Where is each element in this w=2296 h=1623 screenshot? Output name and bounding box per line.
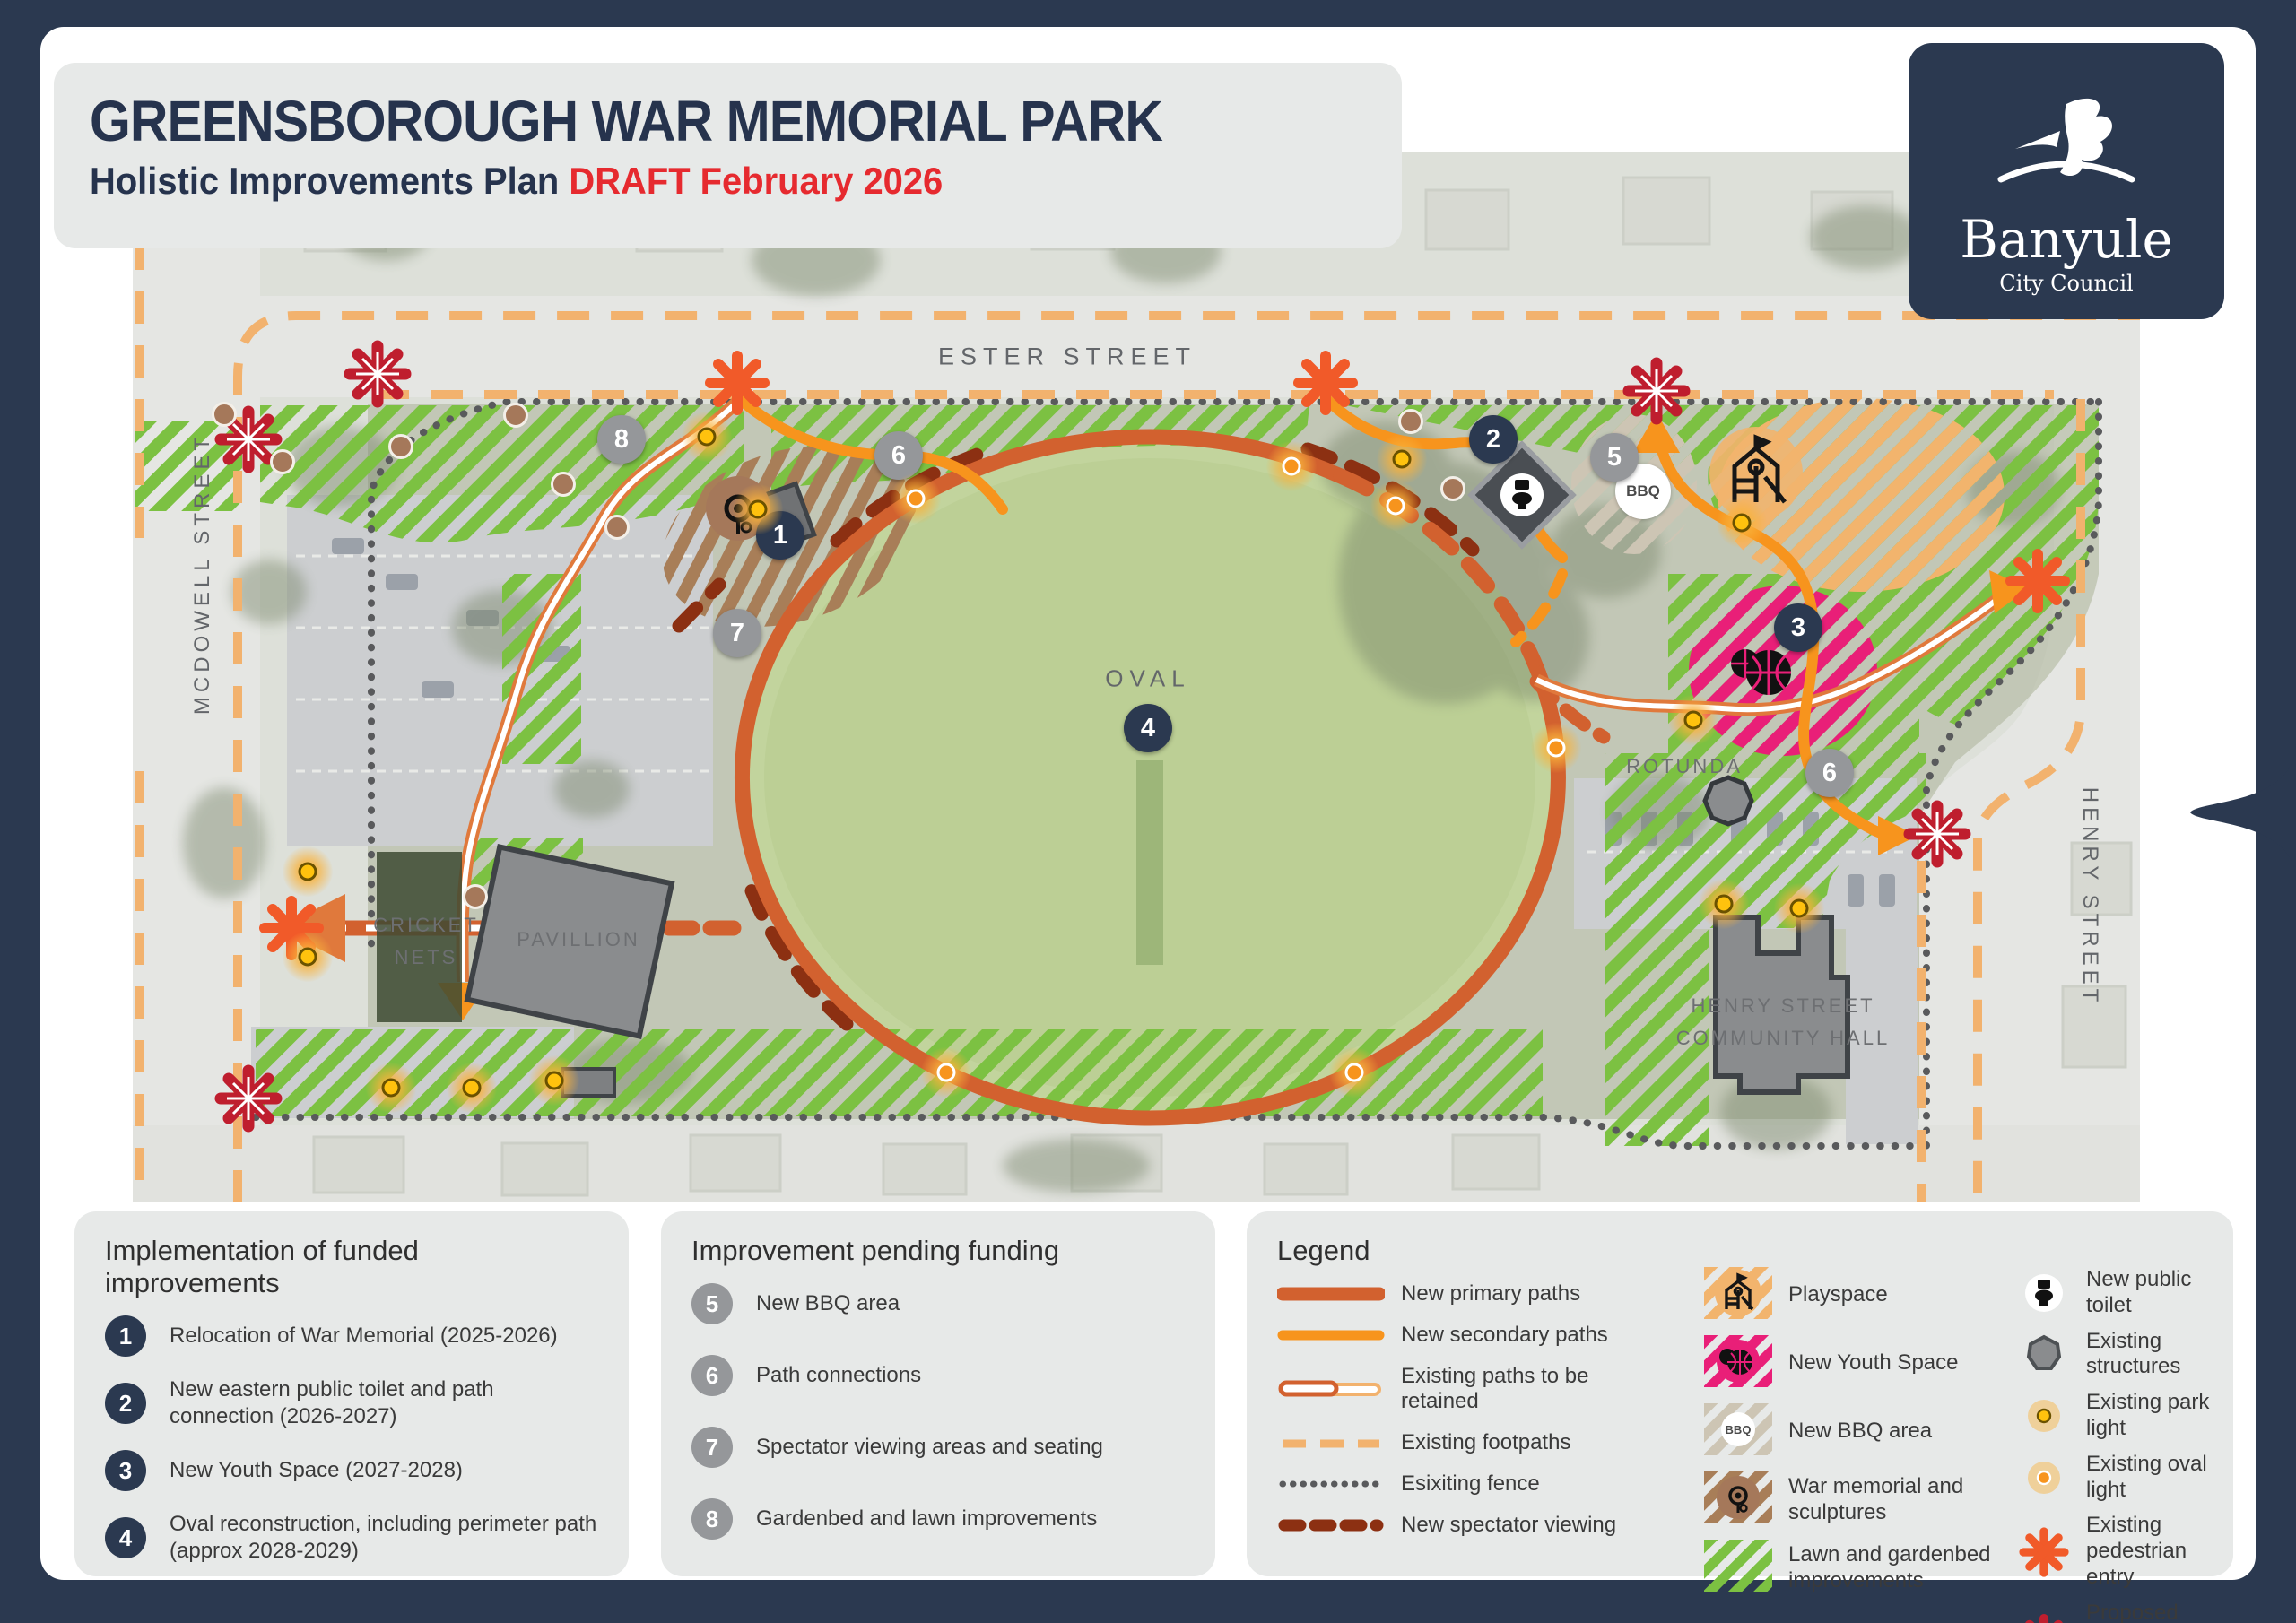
tree-dot: [388, 434, 413, 459]
legend-primary-paths: New primary paths: [1277, 1281, 1672, 1307]
subtitle-plain: Holistic Improvements Plan: [90, 160, 569, 202]
legend-war-memorial: War memorial and sculptures: [1704, 1471, 1991, 1528]
svg-text:BBQ: BBQ: [1726, 1423, 1752, 1436]
rotunda-label: ROTUNDA: [1626, 755, 1743, 778]
pending-item-7: 7 Spectator viewing areas and seating: [691, 1427, 1185, 1468]
legend-label: Existing structures: [2086, 1329, 2224, 1381]
pending-item-6-badge: 6: [691, 1355, 733, 1396]
legend-youth-space: New Youth Space: [1704, 1335, 1991, 1392]
park-light-legend-icon: [2018, 1395, 2070, 1436]
legend-playspace: Playspace: [1704, 1267, 1991, 1324]
park-light-icon: [733, 484, 783, 534]
logo-subtitle: City Council: [1999, 271, 2133, 296]
park-light-icon: [1377, 434, 1427, 484]
park-light-icon: [1668, 695, 1718, 745]
pending-item-7-badge: 7: [691, 1427, 733, 1468]
marker-7: 7: [713, 609, 761, 657]
funded-item-4: 4 Oval reconstruction, including perimet…: [105, 1511, 598, 1565]
legend-label: New secondary paths: [1401, 1323, 1608, 1349]
legend-label: Existing oval light: [2086, 1452, 2224, 1504]
marker-6-top: 6: [874, 431, 923, 480]
banyule-bird-icon: [1981, 97, 2152, 213]
tree-dot: [1398, 409, 1423, 434]
ester-street-label: ESTER STREET: [938, 343, 1196, 371]
oval-light-legend-icon: [2018, 1457, 2070, 1498]
cricket-nets-label-2: NETS: [395, 946, 458, 969]
funded-item-2: 2 New eastern public toilet and path con…: [105, 1376, 598, 1430]
funded-item-1: 1 Relocation of War Memorial (2025-2026): [105, 1315, 598, 1357]
pending-funding-panel: Improvement pending funding 5 New BBQ ar…: [661, 1211, 1215, 1576]
legend-label: Existing pedestrian entry: [2086, 1513, 2224, 1590]
secondary-path-icon: [1277, 1326, 1385, 1344]
legend-secondary-paths: New secondary paths: [1277, 1323, 1672, 1349]
tree-dot: [551, 472, 576, 497]
legend-label: Proposed pedestrian entry: [2086, 1601, 2224, 1623]
legend-label: Lawn and gardenbed improvements: [1788, 1542, 1991, 1594]
tree-dot: [212, 402, 237, 427]
page-subtitle: Holistic Improvements Plan DRAFT Februar…: [90, 160, 1302, 203]
title-panel: GREENSBOROUGH WAR MEMORIAL PARK Holistic…: [54, 63, 1402, 248]
legend-existing-footpaths: Existing footpaths: [1277, 1430, 1672, 1456]
legend-title: Legend: [1277, 1235, 2203, 1267]
funded-item-4-badge: 4: [105, 1517, 146, 1558]
legend-label: Existing paths to be retained: [1401, 1364, 1672, 1416]
legend-bbq-area: BBQ New BBQ area: [1704, 1403, 1991, 1460]
legend-spectator-viewing: New spectator viewing: [1277, 1513, 1672, 1539]
pending-item-8-badge: 8: [691, 1498, 733, 1540]
marker-5: 5: [1590, 433, 1639, 482]
park-light-icon: [682, 412, 732, 462]
marker-2: 2: [1469, 415, 1518, 464]
legend-label: Esixiting fence: [1401, 1471, 1540, 1497]
legend-label: Existing park light: [2086, 1390, 2224, 1442]
tree-dot: [463, 884, 488, 909]
oval-label: OVAL: [1105, 665, 1190, 693]
legend-label: New BBQ area: [1788, 1419, 1932, 1445]
legend-oval-light: Existing oval light: [2018, 1452, 2224, 1504]
existing-entry-legend-icon: [2018, 1527, 2070, 1577]
park-light-icon: [283, 846, 333, 897]
legend-label: New primary paths: [1401, 1281, 1580, 1307]
funded-item-3: 3 New Youth Space (2027-2028): [105, 1450, 598, 1491]
legend-lawn-gardenbed: Lawn and gardenbed improvements: [1704, 1540, 1991, 1596]
subtitle-draft: DRAFT February 2026: [569, 160, 943, 202]
marker-4: 4: [1124, 704, 1172, 752]
oval-light-icon: [1266, 441, 1317, 491]
oval-light-icon: [921, 1047, 971, 1098]
park-light-icon: [1699, 879, 1749, 929]
legend-label: New Youth Space: [1788, 1350, 1958, 1376]
fence-icon: [1277, 1475, 1385, 1493]
legend-new-toilet: New public toilet: [2018, 1267, 2224, 1319]
toilet-legend-icon: [2018, 1272, 2070, 1314]
community-hall-label-1: HENRY STREET: [1691, 994, 1874, 1018]
playspace-swatch-icon: [1704, 1267, 1772, 1324]
legend-existing-structures: Existing structures: [2018, 1329, 2224, 1381]
funded-item-2-badge: 2: [105, 1383, 146, 1424]
structure-legend-icon: [2018, 1333, 2070, 1375]
funded-item-2-text: New eastern public toilet and path conne…: [170, 1376, 598, 1430]
spectator-icon: [1277, 1516, 1385, 1534]
marker-8: 8: [597, 415, 646, 464]
legend-retained-paths: Existing paths to be retained: [1277, 1364, 1672, 1416]
park-light-icon: [1774, 883, 1824, 933]
park-light-icon: [366, 1063, 416, 1113]
funded-improvements-panel: Implementation of funded improvements 1 …: [74, 1211, 629, 1576]
cricket-nets-structure: [377, 852, 462, 1022]
tree-dot: [270, 449, 295, 474]
park-light-icon: [529, 1055, 579, 1106]
oval-light-icon: [1329, 1047, 1379, 1098]
pending-item-6: 6 Path connections: [691, 1355, 1185, 1396]
marker-6-bottom: 6: [1805, 749, 1854, 797]
tree-dot: [503, 403, 528, 428]
cricket-pitch: [1136, 760, 1163, 965]
proposed-entry-legend-icon: [2018, 1614, 2070, 1623]
mcdowell-street-label: MCDOWELL STREET: [190, 433, 215, 715]
legend-panel: Legend New primary paths New secondary p…: [1247, 1211, 2233, 1576]
oval-light-icon: [891, 473, 941, 524]
park-light-icon: [1717, 498, 1767, 548]
legend-park-light: Existing park light: [2018, 1390, 2224, 1442]
funded-panel-title: Implementation of funded improvements: [105, 1235, 598, 1299]
legend-label: New public toilet: [2086, 1267, 2224, 1319]
pending-item-8: 8 Gardenbed and lawn improvements: [691, 1498, 1185, 1540]
funded-item-1-badge: 1: [105, 1315, 146, 1357]
community-hall-label-2: COMMUNITY HALL: [1676, 1027, 1890, 1050]
plan-frame: ESTER STREET MCDOWELL STREET HENRY STREE…: [0, 0, 2296, 1623]
cricket-nets-label-1: CRICKET: [373, 914, 479, 937]
funded-item-3-text: New Youth Space (2027-2028): [170, 1457, 463, 1484]
park-light-icon: [447, 1063, 497, 1113]
pending-item-5: 5 New BBQ area: [691, 1283, 1185, 1324]
primary-path-icon: [1277, 1285, 1385, 1303]
funded-item-4-text: Oval reconstruction, including perimeter…: [170, 1511, 598, 1565]
funded-item-1-text: Relocation of War Memorial (2025-2026): [170, 1323, 558, 1350]
oval-light-icon: [1370, 481, 1421, 531]
funded-item-3-badge: 3: [105, 1450, 146, 1491]
youth-space-swatch-icon: [1704, 1335, 1772, 1392]
legend-existing-fence: Esixiting fence: [1277, 1471, 1672, 1497]
pending-item-8-text: Gardenbed and lawn improvements: [756, 1506, 1097, 1532]
legend-label: Playspace: [1788, 1282, 1888, 1308]
marker-3: 3: [1774, 603, 1822, 652]
tree-dot: [604, 515, 630, 540]
retained-path-icon: [1277, 1378, 1385, 1400]
war-memorial-swatch-icon: [1704, 1471, 1772, 1528]
tree-dot: [1440, 476, 1465, 501]
park-light-icon: [283, 932, 333, 982]
park-map: ESTER STREET MCDOWELL STREET HENRY STREE…: [133, 152, 2140, 1202]
pending-item-5-text: New BBQ area: [756, 1290, 900, 1317]
logo-name: Banyule: [1960, 213, 2173, 265]
legend-proposed-entry: Proposed pedestrian entry: [2018, 1601, 2224, 1623]
rotunda-structure: [1705, 777, 1752, 824]
legend-label: War memorial and sculptures: [1788, 1474, 1991, 1526]
legend-label: New spectator viewing: [1401, 1513, 1616, 1539]
footpath-icon: [1277, 1435, 1385, 1453]
pending-item-6-text: Path connections: [756, 1362, 921, 1389]
pending-item-7-text: Spectator viewing areas and seating: [756, 1434, 1103, 1461]
oval-light-icon: [1531, 723, 1581, 773]
pavillion-label: PAVILLION: [517, 928, 639, 951]
legend-existing-entry: Existing pedestrian entry: [2018, 1513, 2224, 1590]
pending-item-5-badge: 5: [691, 1283, 733, 1324]
legend-label: Existing footpaths: [1401, 1430, 1570, 1456]
bbq-swatch-icon: BBQ: [1704, 1403, 1772, 1460]
lawn-swatch-icon: [1704, 1540, 1772, 1596]
page-title: GREENSBOROUGH WAR MEMORIAL PARK: [90, 88, 1264, 154]
banyule-logo-panel: Banyule City Council: [1909, 43, 2224, 319]
henry-street-label: HENRY STREET: [2077, 787, 2102, 1007]
pending-panel-title: Improvement pending funding: [691, 1235, 1185, 1267]
